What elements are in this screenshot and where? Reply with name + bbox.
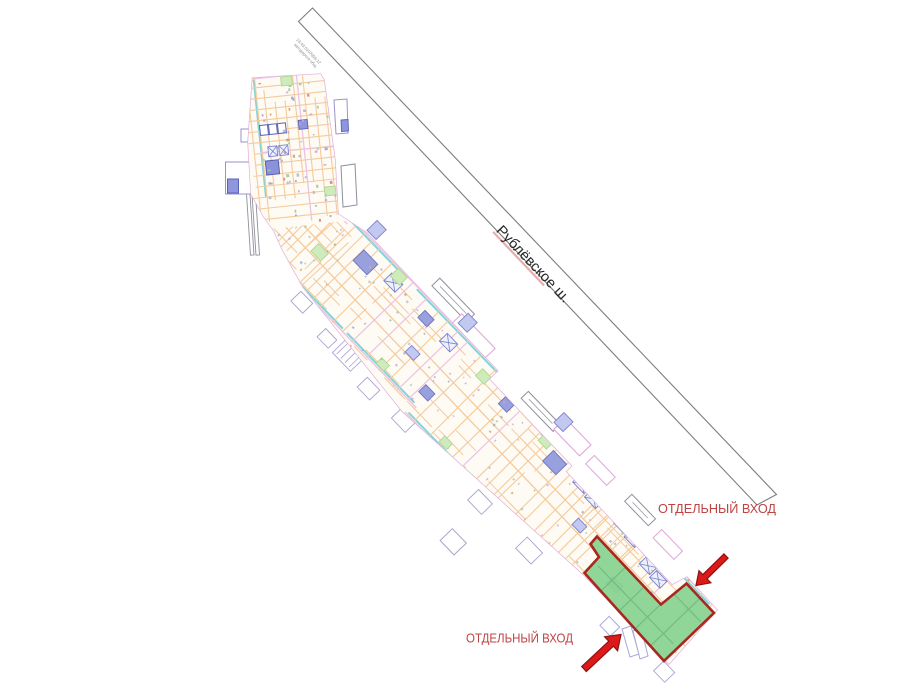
svg-text:ОТДЕЛЬНЫЙ ВХОД: ОТДЕЛЬНЫЙ ВХОД bbox=[466, 631, 573, 646]
svg-text:ОТДЕЛЬНЫЙ ВХОД: ОТДЕЛЬНЫЙ ВХОД bbox=[658, 501, 776, 516]
